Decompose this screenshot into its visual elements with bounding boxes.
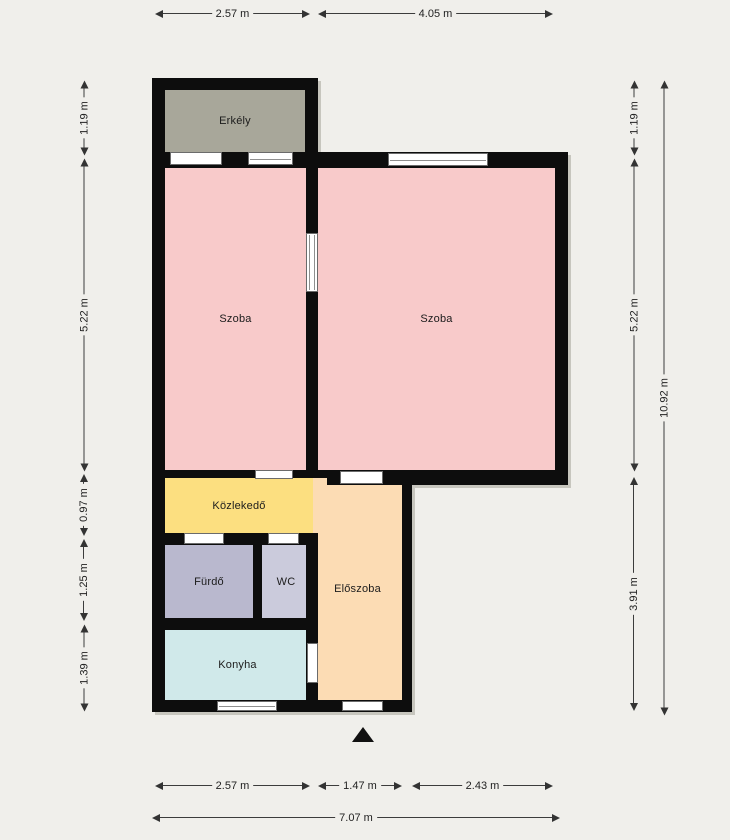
dim-arrow-left-icon (630, 147, 638, 155)
dim-left-3: 0.97 m (76, 474, 92, 536)
dim-arrow-right-icon (80, 539, 88, 547)
dim-arrow-right-icon (630, 158, 638, 166)
dim-left-4: 1.25 m (76, 539, 92, 621)
entrance-door (342, 701, 383, 711)
dim-label: 4.05 m (415, 7, 457, 21)
room-eloszoba: Előszoba (313, 478, 402, 700)
room-szoba-left: Szoba (165, 168, 306, 470)
dim-label: 7.07 m (335, 811, 377, 825)
dim-arrow-left-icon (80, 528, 88, 536)
entrance-arrow-icon (352, 727, 374, 742)
room-label-furdo: Fürdő (194, 576, 224, 588)
room-label-eloszoba: Előszoba (334, 583, 381, 595)
dim-label: 2.43 m (462, 779, 504, 793)
dim-arrow-right-icon (630, 80, 638, 88)
dim-arrow-left-icon (155, 782, 163, 790)
dim-arrow-left-icon (630, 463, 638, 471)
dim-label: 5.22 m (77, 294, 91, 336)
dim-label: 1.19 m (77, 97, 91, 139)
dim-arrow-right-icon (552, 814, 560, 822)
dim-bottom-1: 2.57 m (155, 778, 310, 794)
konyha-door (307, 643, 318, 683)
room-label-szoba-left: Szoba (219, 313, 251, 325)
dim-arrow-left-icon (152, 814, 160, 822)
dim-arrow-left-icon (660, 707, 668, 715)
inter-szoba-window (306, 233, 318, 292)
wall-wc-konyha-right (306, 533, 318, 712)
szoba-right-door (340, 471, 383, 484)
room-label-kozlekedo: Közlekedő (212, 500, 265, 512)
dim-arrow-right-icon (80, 80, 88, 88)
room-label-wc: WC (277, 576, 296, 588)
wc-door (268, 533, 299, 544)
szoba-right-top-window (388, 153, 488, 166)
dim-label: 1.39 m (77, 647, 91, 689)
dim-label: 2.57 m (212, 7, 254, 21)
dim-arrow-right-icon (80, 474, 88, 482)
dim-right-inner-3: 3.91 m (626, 477, 642, 711)
room-furdo: Fürdő (165, 545, 253, 618)
dim-left-2: 5.22 m (76, 158, 92, 471)
furdo-door (184, 533, 224, 544)
dim-arrow-right-icon (545, 782, 553, 790)
room-label-szoba-right: Szoba (420, 313, 452, 325)
dim-arrow-left-icon (318, 10, 326, 18)
dim-label: 1.19 m (627, 97, 641, 139)
room-konyha: Konyha (165, 630, 310, 700)
dim-label: 5.22 m (627, 294, 641, 336)
room-szoba-right: Szoba (318, 168, 555, 470)
dim-right-inner-1: 1.19 m (626, 80, 642, 155)
dim-arrow-right-icon (660, 80, 668, 88)
room-kozlekedo: Közlekedő (165, 478, 313, 533)
dim-arrow-left-icon (155, 10, 163, 18)
balcony-window (248, 152, 293, 165)
szoba-left-door (255, 470, 293, 479)
dim-right-inner-2: 5.22 m (626, 158, 642, 471)
dim-arrow-right-icon (545, 10, 553, 18)
dim-label: 2.57 m (212, 779, 254, 793)
dim-right-outer-total: 10.92 m (656, 80, 672, 715)
room-wc: WC (262, 545, 310, 618)
dim-bottom-2: 1.47 m (318, 778, 402, 794)
dim-arrow-right-icon (80, 624, 88, 632)
dim-label: 3.91 m (627, 573, 641, 615)
room-label-erkely: Erkély (219, 115, 251, 127)
room-erkely: Erkély (165, 90, 305, 152)
dim-label: 0.97 m (77, 484, 91, 526)
dim-arrow-left-icon (80, 703, 88, 711)
dim-arrow-left-icon (80, 463, 88, 471)
dim-arrow-left-icon (80, 613, 88, 621)
dim-bottom-total: 7.07 m (152, 810, 560, 826)
konyha-window (217, 701, 277, 711)
dim-label: 1.25 m (77, 559, 91, 601)
dim-top-1: 2.57 m (155, 6, 310, 22)
room-label-konyha: Konyha (218, 659, 257, 671)
dim-arrow-right-icon (302, 10, 310, 18)
dim-bottom-3: 2.43 m (412, 778, 553, 794)
dim-top-2: 4.05 m (318, 6, 553, 22)
balcony-door (170, 152, 222, 165)
floorplan-page: Erkély Szoba Szoba Közlekedő Előszoba Fü… (0, 0, 730, 840)
dim-label: 1.47 m (339, 779, 381, 793)
dim-arrow-left-icon (80, 147, 88, 155)
dim-arrow-left-icon (412, 782, 420, 790)
dim-arrow-right-icon (302, 782, 310, 790)
dim-arrow-right-icon (630, 477, 638, 485)
dim-arrow-right-icon (394, 782, 402, 790)
dim-left-5: 1.39 m (76, 624, 92, 711)
dim-left-1: 1.19 m (76, 80, 92, 155)
dim-arrow-left-icon (318, 782, 326, 790)
dim-label: 10.92 m (657, 374, 671, 422)
dim-arrow-left-icon (630, 703, 638, 711)
dim-arrow-right-icon (80, 158, 88, 166)
